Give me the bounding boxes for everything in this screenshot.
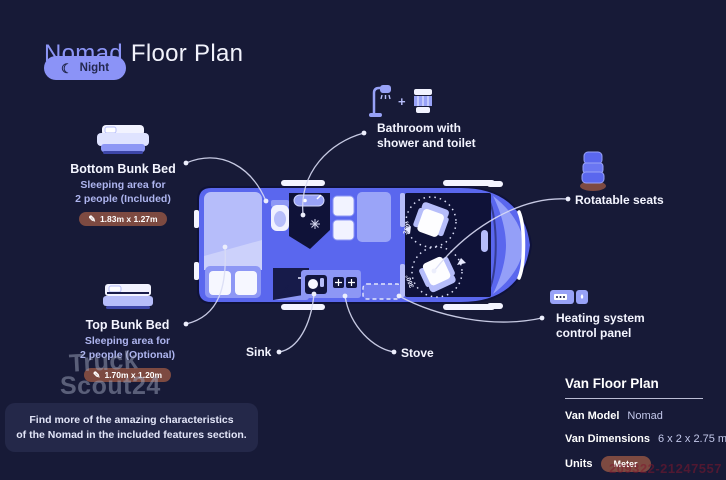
van-cab: 360° 360° bbox=[400, 193, 491, 297]
units-label: Units bbox=[565, 458, 593, 470]
night-mode-toggle[interactable]: ☾ Night bbox=[44, 56, 126, 80]
top-bunk-dimensions: 1.70m x 1.20m bbox=[104, 370, 162, 380]
bathroom-label-line1: Bathroom with bbox=[377, 121, 461, 135]
van-heating-panel-location bbox=[363, 284, 401, 299]
top-bunk-dimensions-badge: ✎ 1.70m x 1.20m bbox=[84, 368, 171, 382]
toilet-icon bbox=[412, 88, 434, 114]
rotatable-seats-label: Rotatable seats bbox=[575, 193, 664, 208]
seat-icon bbox=[577, 150, 609, 192]
bottom-bunk-dimensions: 1.83m x 1.27m bbox=[100, 214, 158, 224]
spec-panel-title: Van Floor Plan bbox=[565, 376, 717, 391]
bottom-bunk-desc-2: 2 people (Included) bbox=[75, 193, 171, 205]
bottom-bunk-title: Bottom Bunk Bed bbox=[70, 162, 176, 176]
shower-icon bbox=[368, 84, 392, 118]
rotatable-seats-icon-wrap bbox=[577, 150, 609, 192]
top-bunk-title: Top Bunk Bed bbox=[86, 318, 170, 332]
van-dimensions-label: Van Dimensions bbox=[565, 433, 650, 445]
bathroom-label-line2: shower and toilet bbox=[377, 136, 476, 150]
sink-label-text: Sink bbox=[246, 345, 271, 359]
page-title-rest: Floor Plan bbox=[131, 40, 243, 67]
bunk-bed-icon bbox=[94, 124, 152, 156]
van-bed bbox=[204, 192, 262, 298]
heating-icon-wrap bbox=[550, 289, 588, 305]
info-note: Find more of the amazing characteristics… bbox=[5, 403, 258, 452]
van-model-label: Van Model bbox=[565, 410, 619, 422]
bathroom-label: Bathroom with shower and toilet bbox=[377, 121, 476, 150]
bottom-bunk-desc-1: Sleeping area for bbox=[80, 179, 165, 191]
heating-label: Heating system control panel bbox=[556, 311, 645, 340]
heating-label-line2: control panel bbox=[556, 326, 631, 340]
moon-icon: ☾ bbox=[61, 62, 73, 75]
heating-label-line1: Heating system bbox=[556, 311, 645, 325]
spec-row-model: Van Model Nomad bbox=[565, 410, 717, 422]
shower-sparkle-icon bbox=[310, 219, 320, 229]
pencil-icon: ✎ bbox=[88, 215, 96, 224]
floor-plan-page: 360° 360° bbox=[0, 0, 726, 480]
spec-row-dimensions: Van Dimensions 6 x 2 x 2.75 m bbox=[565, 433, 717, 445]
spec-panel-divider bbox=[565, 398, 703, 399]
heater-control-icon bbox=[550, 289, 588, 305]
van-dimensions-value: 6 x 2 x 2.75 m bbox=[658, 433, 726, 445]
van-model-value: Nomad bbox=[627, 410, 662, 422]
pencil-icon: ✎ bbox=[93, 371, 101, 380]
bottom-bunk-dimensions-badge: ✎ 1.83m x 1.27m bbox=[79, 212, 166, 226]
spec-panel: Van Floor Plan Van Model Nomad Van Dimen… bbox=[565, 376, 717, 472]
stove-label-text: Stove bbox=[401, 346, 434, 360]
spec-row-units: Units Meter bbox=[565, 456, 717, 472]
rotatable-seats-text: Rotatable seats bbox=[575, 193, 664, 207]
info-note-line2: of the Nomad in the included features se… bbox=[16, 428, 246, 443]
info-note-line1: Find more of the amazing characteristics bbox=[29, 413, 233, 428]
sink-label: Sink bbox=[246, 345, 271, 360]
top-bunk-desc-1: Sleeping area for bbox=[85, 335, 170, 347]
feature-top-bunk: Top Bunk Bed Sleeping area for 2 people … bbox=[45, 282, 210, 382]
top-bunk-desc-2: 2 people (Optional) bbox=[80, 349, 175, 361]
stove-label: Stove bbox=[401, 346, 434, 361]
bathroom-icons: + bbox=[368, 84, 434, 118]
top-bunk-bed-icon bbox=[100, 282, 156, 312]
night-mode-label: Night bbox=[80, 62, 109, 74]
units-value-badge[interactable]: Meter bbox=[601, 456, 651, 472]
plus-icon: + bbox=[398, 94, 406, 109]
feature-bottom-bunk: Bottom Bunk Bed Sleeping area for 2 peop… bbox=[43, 124, 203, 226]
van-floorplan-illustration: 360° 360° bbox=[193, 180, 541, 310]
